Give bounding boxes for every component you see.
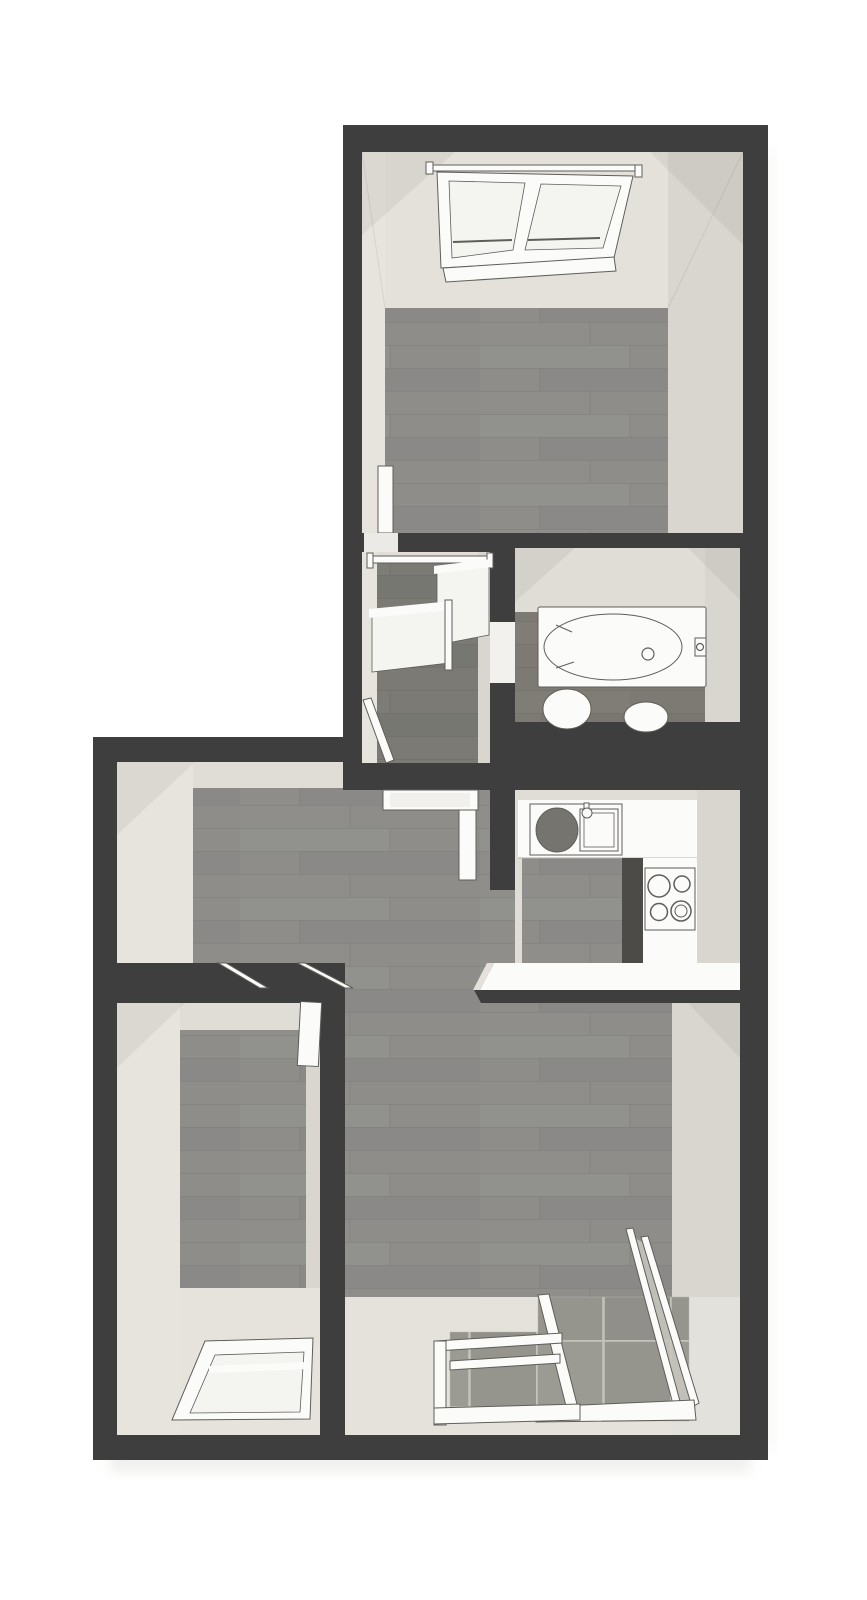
bathroom-door-opening: [490, 622, 515, 683]
bedroom-top-open-door-leaf: [378, 466, 393, 533]
bedroom-bottom-floor: [180, 1030, 306, 1288]
half-wall-dark-edge: [474, 990, 515, 1003]
stair-door-opening: [390, 793, 470, 807]
counter-side-shadow: [622, 858, 643, 965]
rail-cap: [635, 165, 642, 177]
bathtub-basin: [544, 614, 682, 680]
half-wall-cap: [480, 963, 740, 990]
rail-cap: [426, 162, 433, 174]
living-floor: [345, 1003, 672, 1297]
kitchen-sink-unit: [530, 803, 622, 855]
bedroom-top-floor: [385, 308, 668, 533]
hall-living-connector-floor: [345, 963, 490, 1003]
skylight-pane-left: [449, 181, 525, 258]
toilet: [543, 689, 591, 729]
room-stair-landing: [362, 552, 493, 763]
sink-basin: [536, 808, 578, 852]
room-kitchen: [515, 790, 740, 990]
bedroom-bottom-door-leaf: [297, 1002, 321, 1067]
cooktop: [645, 868, 695, 930]
room-bedroom-bottom: [117, 1002, 322, 1435]
window-bottom-rail: [434, 1404, 580, 1424]
skylight-window-top: [426, 162, 642, 282]
hallway-floor: [193, 788, 490, 963]
faucet: [582, 808, 592, 818]
bathtub: [538, 607, 706, 687]
railing-post: [445, 600, 452, 670]
washbasin: [624, 702, 668, 732]
room-living: [345, 1003, 740, 1435]
railing-post: [367, 553, 373, 568]
room-bathroom: [515, 548, 740, 732]
kitchen-passage-floor: [490, 890, 515, 963]
skylight-top-rail: [429, 165, 639, 171]
bedroom-top-door-threshold: [364, 533, 398, 552]
kitchen-right-wall-face: [697, 790, 740, 990]
stair-door-leaf: [459, 810, 476, 880]
floor-plan-canvas: [0, 0, 867, 1600]
floor-plan-drawing: [0, 0, 867, 1600]
room-bedroom-top: [362, 152, 743, 552]
